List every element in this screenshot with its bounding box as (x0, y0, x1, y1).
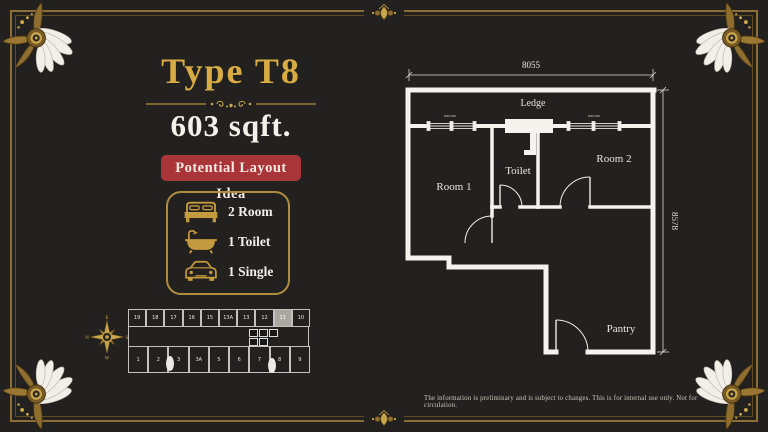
keyplan-unit-13: 13 (237, 309, 255, 327)
keyplan-unit-12: 12 (255, 309, 273, 327)
keyplan-unit-17: 17 (164, 309, 182, 327)
potential-layout-badge: Potential Layout Idea (161, 155, 301, 181)
window-size-label: 600x500 (444, 114, 457, 118)
room1-label: Room 1 (436, 181, 471, 193)
wing-ornament-icon (679, 1, 767, 89)
lift-box (249, 338, 258, 346)
floorplan-drawing: 8055 8578 (398, 56, 678, 376)
lift-box (249, 329, 258, 337)
keyplan-unit-15: 15 (201, 309, 219, 327)
fleur-ornament-icon (364, 410, 404, 428)
keyplan-unit-11: 11 (274, 309, 292, 327)
dimension-top-label: 8055 (522, 60, 541, 70)
duct-foot (524, 150, 536, 155)
keyplan-unit-16: 16 (183, 309, 201, 327)
lift-box (259, 329, 268, 337)
amenity-toilet: 1 Toilet (182, 227, 288, 257)
car-icon (182, 258, 220, 286)
keyplan-unit-3A: 3A (189, 346, 209, 373)
fleur-ornament-icon (364, 4, 404, 22)
keyplan-unit-13A: 13A (219, 309, 237, 327)
dimension-right-label: 8578 (670, 212, 678, 231)
dimension-right-line (657, 87, 669, 355)
dimension-top-line (406, 69, 656, 81)
compass-bottom-label: W (105, 357, 110, 361)
keyplan-unit-6: 6 (229, 346, 249, 373)
compass-top-label: E (105, 316, 108, 321)
ac-ledge-block (505, 119, 553, 133)
keyplan: 191817161513A13121110 1233A56789 (128, 309, 310, 375)
keyplan-top-row: 191817161513A13121110 (128, 309, 310, 327)
keyplan-unit-1: 1 (128, 346, 148, 373)
keyplan-unit-9: 9 (290, 346, 310, 373)
bed-icon (182, 198, 220, 226)
wing-ornament-icon (679, 343, 767, 431)
amenity-box: 2 Room 1 Toilet 1 Single (166, 191, 290, 295)
keyplan-bottom-row: 1233A56789 (128, 346, 310, 373)
room2-label: Room 2 (596, 153, 631, 165)
lift-box (259, 338, 268, 346)
keyplan-unit-10: 10 (292, 309, 310, 327)
pantry-label: Pantry (607, 323, 636, 335)
amenity-parking-label: 1 Single (228, 264, 273, 280)
window-room2 (567, 122, 621, 131)
keyplan-unit-5: 5 (209, 346, 229, 373)
keyplan-unit-7: 7 (249, 346, 269, 373)
window-size-label: 600x500 (588, 114, 601, 118)
ledge-label: Ledge (521, 98, 547, 109)
window-room1 (427, 122, 476, 131)
amenity-toilet-label: 1 Toilet (228, 234, 270, 250)
slide: Type T8 603 sqft. Potential Layout Idea … (0, 0, 768, 432)
amenity-rooms: 2 Room (182, 197, 288, 227)
wing-ornament-icon (1, 343, 89, 431)
bathtub-icon (182, 228, 220, 256)
lift-box (269, 329, 278, 337)
amenity-parking: 1 Single (182, 257, 288, 287)
amenity-rooms-label: 2 Room (228, 204, 273, 220)
stair-oval (268, 358, 276, 373)
keyplan-unit-18: 18 (146, 309, 164, 327)
unit-type-title: Type T8 (116, 50, 346, 92)
keyplan-unit-19: 19 (128, 309, 146, 327)
unit-area-text: 603 sqft. (116, 108, 346, 144)
disclaimer-text: The information is preliminary and is su… (424, 395, 716, 409)
wing-ornament-icon (1, 1, 89, 89)
compass-rose-icon: E S W N (84, 314, 130, 360)
stair-oval (166, 356, 174, 371)
toilet-label: Toilet (505, 165, 531, 177)
compass-left-label: N (85, 336, 89, 341)
keyplan-corridor (128, 327, 309, 346)
